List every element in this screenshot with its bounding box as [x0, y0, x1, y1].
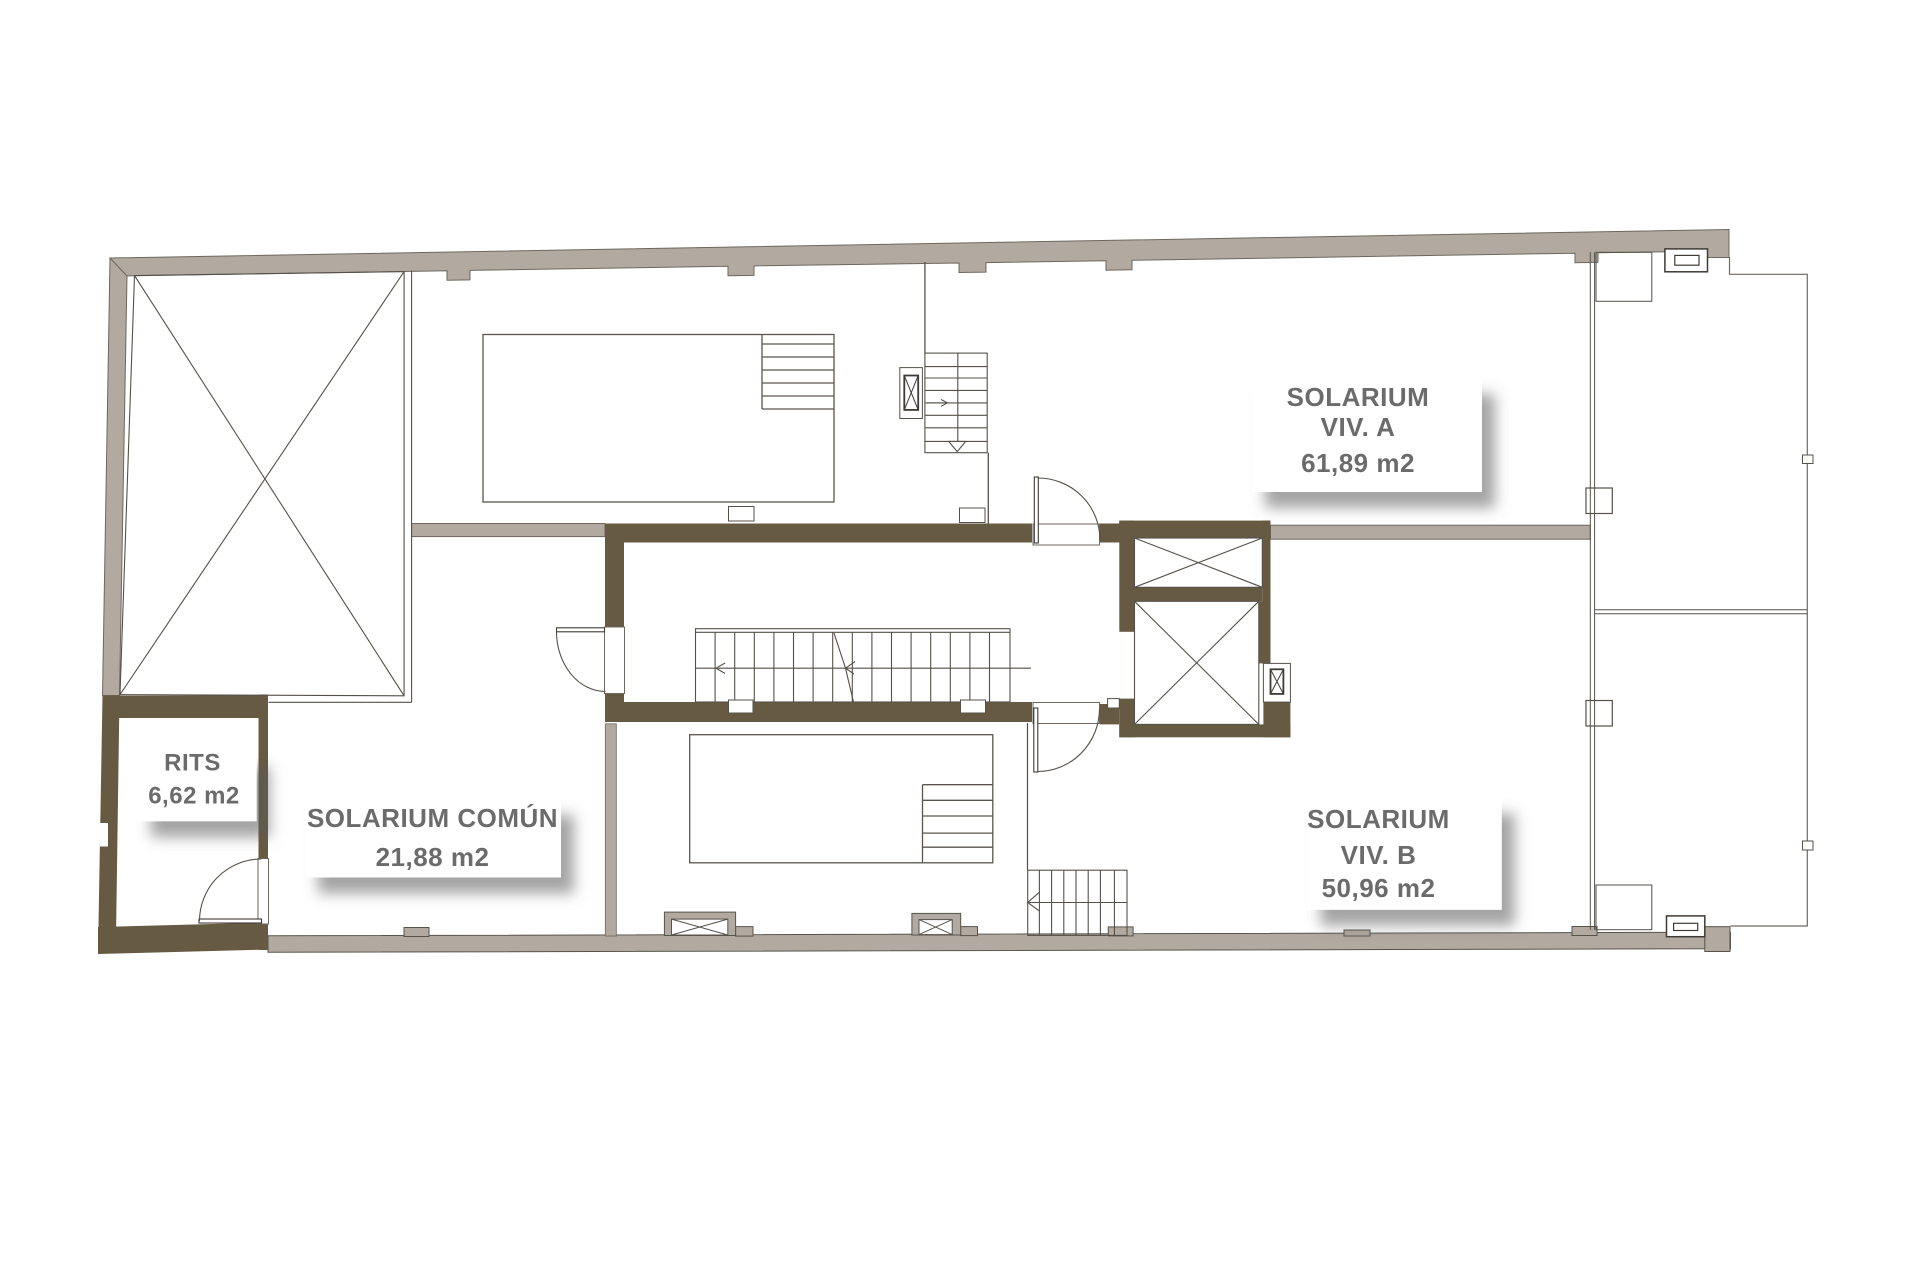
svg-text:VIV. A: VIV. A — [1321, 412, 1396, 442]
svg-text:RITS: RITS — [164, 750, 221, 777]
svg-text:21,88 m2: 21,88 m2 — [376, 842, 490, 872]
svg-text:SOLARIUM: SOLARIUM — [1287, 382, 1430, 412]
svg-text:6,62 m2: 6,62 m2 — [148, 783, 240, 810]
svg-text:SOLARIUM: SOLARIUM — [1307, 804, 1450, 834]
svg-text:61,89 m2: 61,89 m2 — [1301, 448, 1415, 478]
svg-text:50,96 m2: 50,96 m2 — [1322, 873, 1436, 903]
svg-text:SOLARIUM COMÚN: SOLARIUM COMÚN — [307, 803, 558, 833]
svg-text:VIV. B: VIV. B — [1341, 840, 1417, 870]
